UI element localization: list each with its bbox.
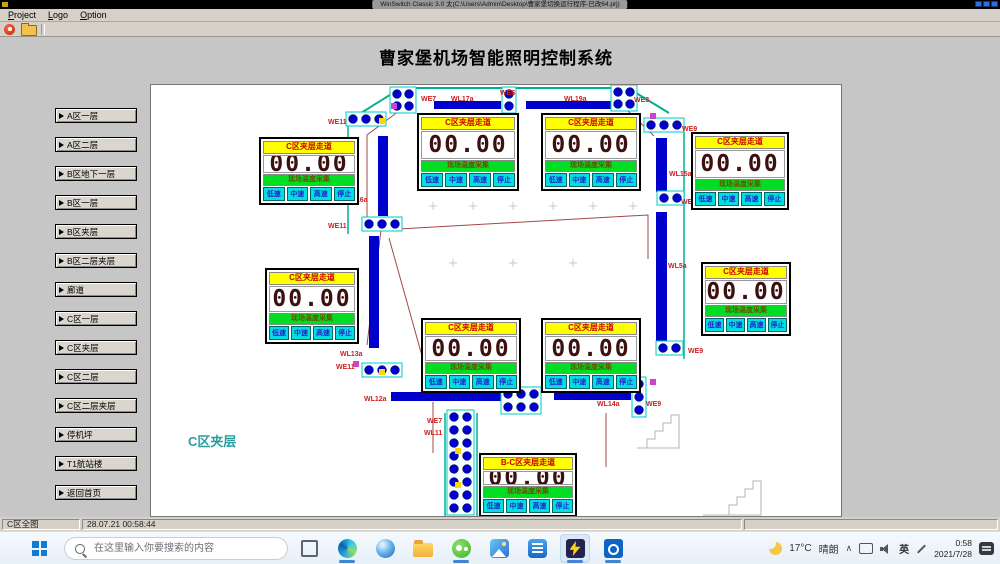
system-tray: 17°C 晴朗 ∧ 英 0:58 2021/7/28: [769, 532, 994, 564]
display-panel: C区夹层走道00.00现场温度采集低速中速高速停止: [417, 113, 519, 191]
temperature-display: 00.00: [545, 131, 637, 159]
sidebar-button-廊道[interactable]: 廊道: [55, 282, 137, 297]
chevron-up-icon[interactable]: ∧: [846, 543, 853, 554]
taskbar: 17°C 晴朗 ∧ 英 0:58 2021/7/28: [0, 531, 1000, 564]
edge-glyph: [338, 539, 357, 558]
photos-icon[interactable]: [484, 534, 514, 563]
speed-button-低速[interactable]: 低速: [263, 187, 285, 201]
arrow-icon: [59, 403, 64, 409]
display-panel: C区夹层走道00.00现场温度采集低速中速高速停止: [541, 113, 641, 191]
sidebar-button-C区二层[interactable]: C区二层: [55, 369, 137, 384]
arrow-icon: [59, 287, 64, 293]
sensor-label: 现场温度采集: [269, 313, 355, 325]
sensor-label: 现场温度采集: [695, 179, 785, 191]
menu-option[interactable]: Option: [74, 10, 113, 20]
panel-title: C区夹层走道: [695, 136, 785, 149]
sensor-label: 现场温度采集: [263, 174, 355, 186]
speed-button-中速[interactable]: 中速: [449, 375, 471, 389]
arrow-icon: [59, 345, 64, 351]
speed-button-停止[interactable]: 停止: [616, 375, 638, 389]
panel-title: C区夹层走道: [545, 117, 637, 130]
tim-glyph: [528, 539, 547, 558]
speed-buttons: 低速中速高速停止: [425, 375, 517, 389]
notification-icon[interactable]: [979, 542, 994, 555]
display-panel: B-C区夹层走道00.00现场温度采集低速中速高速停止: [479, 453, 577, 517]
search-icon: [75, 544, 85, 554]
speed-button-中速[interactable]: 中速: [291, 326, 311, 340]
sensor-label: 现场温度采集: [483, 486, 573, 498]
search-input[interactable]: [92, 542, 266, 555]
wechat-glyph: [452, 539, 471, 558]
sidebar-button-A区一层[interactable]: A区一层: [55, 108, 137, 123]
speed-button-高速[interactable]: 高速: [592, 173, 614, 187]
display-panel: C区夹层走道00.00现场温度采集低速中速高速停止: [541, 318, 641, 393]
status-page-name: C区全图: [2, 519, 80, 530]
sidebar-button-C区夹层[interactable]: C区夹层: [55, 340, 137, 355]
clock-date: 2021/7/28: [934, 549, 972, 560]
sensor-label: 现场温度采集: [421, 160, 515, 172]
arrow-icon: [59, 113, 64, 119]
speed-buttons: 低速中速高速停止: [269, 326, 355, 340]
speed-buttons: 低速中速高速停止: [545, 173, 637, 187]
sidebar-button-返回首页[interactable]: 返回首页: [55, 485, 137, 500]
browser-glyph: [376, 539, 395, 558]
speed-button-高速[interactable]: 高速: [472, 375, 494, 389]
sensor-label: 现场温度采集: [545, 362, 637, 374]
display-panel: C区夹层走道00.00现场温度采集低速中速高速停止: [259, 137, 359, 205]
sidebar-button-label: B区一层: [67, 197, 98, 209]
display-panel: C区夹层走道00.00现场温度采集低速中速高速停止: [421, 318, 521, 393]
area-label: C区夹层: [188, 431, 236, 450]
speed-button-停止[interactable]: 停止: [552, 499, 573, 513]
outlook-glyph: [604, 539, 623, 558]
status-timestamp: 28.07.21 00:58:44: [82, 519, 742, 530]
temperature-display: 00.00: [695, 150, 785, 178]
sidebar: A区一层A区二层B区地下一层B区一层B区夹层B区二层夹层廊道C区一层C区夹层C区…: [55, 108, 137, 514]
menu-bar: ProjectLogoOption: [0, 9, 1000, 22]
temperature-display: 00.00: [483, 471, 573, 485]
temperature-display: 00.00: [545, 336, 637, 361]
sensor-label: 现场温度采集: [705, 305, 787, 317]
speed-button-停止[interactable]: 停止: [768, 318, 787, 332]
panel-title: C区夹层走道: [421, 117, 515, 130]
outlook-icon[interactable]: [598, 534, 628, 563]
panel-title: C区夹层走道: [545, 322, 637, 335]
task-view-glyph: [301, 540, 318, 557]
app-icon: [2, 2, 8, 7]
panel-title: C区夹层走道: [425, 322, 517, 335]
speed-button-中速[interactable]: 中速: [506, 499, 527, 513]
arrow-icon: [59, 229, 64, 235]
arrow-icon: [59, 432, 64, 438]
speed-button-高速[interactable]: 高速: [529, 499, 550, 513]
speed-button-低速[interactable]: 低速: [705, 318, 724, 332]
maximize-icon[interactable]: [983, 1, 990, 7]
arrow-icon: [59, 490, 64, 496]
speed-button-停止[interactable]: 停止: [496, 375, 518, 389]
folder-glyph: [413, 543, 433, 557]
window-controls: [975, 1, 998, 7]
speed-buttons: 低速中速高速停止: [695, 192, 785, 206]
speed-button-停止[interactable]: 停止: [764, 192, 785, 206]
weather-cond[interactable]: 晴朗: [819, 541, 839, 556]
speed-button-中速[interactable]: 中速: [569, 375, 591, 389]
sidebar-button-label: T1航站楼: [67, 458, 102, 470]
taskbar-icons: [294, 533, 628, 564]
panel-layer: C区夹层走道00.00现场温度采集低速中速高速停止C区夹层走道00.00现场温度…: [151, 85, 842, 517]
sidebar-button-label: B区夹层: [67, 226, 98, 238]
winswitch-icon[interactable]: [560, 534, 590, 563]
sidebar-button-B区地下一层[interactable]: B区地下一层: [55, 166, 137, 181]
toolbar: [0, 22, 1000, 37]
edge-icon[interactable]: [332, 534, 362, 563]
browser-icon[interactable]: [370, 534, 400, 563]
speed-button-高速[interactable]: 高速: [313, 326, 333, 340]
speed-button-低速[interactable]: 低速: [269, 326, 289, 340]
temperature-display: 00.00: [421, 131, 515, 159]
sidebar-button-T1航站楼[interactable]: T1航站楼: [55, 456, 137, 471]
arrow-icon: [59, 374, 64, 380]
sidebar-button-label: B区二层夹层: [67, 255, 115, 267]
menu-project[interactable]: Project: [2, 10, 42, 20]
moon-icon[interactable]: [769, 542, 782, 555]
wechat-icon[interactable]: [446, 534, 476, 563]
sidebar-button-label: A区一层: [67, 110, 98, 122]
sidebar-button-label: C区二层夹层: [67, 400, 116, 412]
page-title: 曹家堡机场智能照明控制系统: [150, 44, 842, 69]
arrow-icon: [59, 461, 64, 467]
clock-time: 0:58: [934, 538, 972, 549]
speed-button-中速[interactable]: 中速: [445, 173, 467, 187]
folder-icon[interactable]: [408, 534, 438, 563]
sidebar-button-C区二层夹层[interactable]: C区二层夹层: [55, 398, 137, 413]
arrow-icon: [59, 171, 64, 177]
sidebar-button-停机坪[interactable]: 停机坪: [55, 427, 137, 442]
sidebar-button-label: A区二层: [67, 139, 98, 151]
status-spare-cell: [744, 519, 998, 530]
panel-title: C区夹层走道: [705, 266, 787, 279]
sidebar-button-label: C区一层: [67, 313, 99, 325]
open-project-icon[interactable]: [21, 25, 37, 36]
speed-buttons: 低速中速高速停止: [483, 499, 573, 513]
screen: WinSwitch Classic 3.0 太(C:\Users\Admin\D…: [0, 0, 1000, 564]
sidebar-button-label: 停机坪: [67, 429, 93, 441]
speed-button-低速[interactable]: 低速: [483, 499, 504, 513]
temperature-display: 00.00: [425, 336, 517, 361]
display-panel: C区夹层走道00.00现场温度采集低速中速高速停止: [265, 268, 359, 344]
winswitch-glyph: [566, 539, 585, 558]
arrow-icon: [59, 316, 64, 322]
tim-icon[interactable]: [522, 534, 552, 563]
stop-icon[interactable]: [4, 24, 15, 35]
speed-button-中速[interactable]: 中速: [726, 318, 745, 332]
sidebar-button-B区夹层[interactable]: B区夹层: [55, 224, 137, 239]
sidebar-button-A区二层[interactable]: A区二层: [55, 137, 137, 152]
taskbar-search[interactable]: [64, 537, 288, 560]
sidebar-button-label: B区地下一层: [67, 168, 115, 180]
speed-button-停止[interactable]: 停止: [334, 187, 356, 201]
arrow-icon: [59, 142, 64, 148]
sidebar-button-label: 返回首页: [67, 487, 101, 499]
display-panel: C区夹层走道00.00现场温度采集低速中速高速停止: [701, 262, 791, 336]
status-bar: C区全图 28.07.21 00:58:44: [0, 517, 1000, 531]
speed-button-中速[interactable]: 中速: [718, 192, 739, 206]
pen-icon[interactable]: [917, 544, 926, 553]
speed-button-停止[interactable]: 停止: [616, 173, 638, 187]
plan-canvas: WE7WL17aWE6WL19aWE3WE11WE9WL16aWL15aWE11…: [150, 84, 842, 517]
arrow-icon: [59, 258, 64, 264]
temperature-display: 00.00: [705, 280, 787, 304]
speed-button-中速[interactable]: 中速: [569, 173, 591, 187]
trackpad-icon[interactable]: [859, 543, 873, 554]
speed-buttons: 低速中速高速停止: [705, 318, 787, 332]
speed-button-低速[interactable]: 低速: [425, 375, 447, 389]
speed-buttons: 低速中速高速停止: [545, 375, 637, 389]
sidebar-button-label: C区夹层: [67, 342, 99, 354]
speed-button-高速[interactable]: 高速: [310, 187, 332, 201]
speed-button-停止[interactable]: 停止: [493, 173, 515, 187]
speed-buttons: 低速中速高速停止: [263, 187, 355, 201]
display-panel: C区夹层走道00.00现场温度采集低速中速高速停止: [691, 132, 789, 210]
close-icon[interactable]: [991, 1, 998, 7]
panel-title: B-C区夹层走道: [483, 457, 573, 470]
window-titlebar: WinSwitch Classic 3.0 太(C:\Users\Admin\D…: [0, 0, 1000, 9]
panel-title: C区夹层走道: [269, 272, 355, 285]
speed-button-低速[interactable]: 低速: [695, 192, 716, 206]
sidebar-button-B区一层[interactable]: B区一层: [55, 195, 137, 210]
panel-title: C区夹层走道: [263, 141, 355, 154]
arrow-icon: [59, 200, 64, 206]
speed-button-高速[interactable]: 高速: [592, 375, 614, 389]
sidebar-button-label: C区二层: [67, 371, 99, 383]
sidebar-button-label: 廊道: [67, 284, 84, 296]
taskbar-clock[interactable]: 0:58 2021/7/28: [934, 538, 972, 559]
photos-glyph: [490, 539, 509, 558]
input-language-indicator[interactable]: 英: [899, 541, 909, 556]
speed-button-低速[interactable]: 低速: [421, 173, 443, 187]
volume-icon[interactable]: [880, 544, 892, 554]
sensor-label: 现场温度采集: [545, 160, 637, 172]
speed-button-高速[interactable]: 高速: [469, 173, 491, 187]
task-view-icon[interactable]: [294, 534, 324, 563]
sidebar-button-C区一层[interactable]: C区一层: [55, 311, 137, 326]
minimize-icon[interactable]: [975, 1, 982, 7]
temperature-display: 00.00: [269, 286, 355, 312]
start-button-icon[interactable]: [32, 541, 47, 556]
toolbar-divider: [41, 24, 45, 35]
window-title: WinSwitch Classic 3.0 太(C:\Users\Admin\D…: [372, 0, 627, 9]
sidebar-button-B区二层夹层[interactable]: B区二层夹层: [55, 253, 137, 268]
speed-button-中速[interactable]: 中速: [287, 187, 309, 201]
speed-button-高速[interactable]: 高速: [741, 192, 762, 206]
speed-buttons: 低速中速高速停止: [421, 173, 515, 187]
temperature-display: 00.00: [263, 155, 355, 173]
sensor-label: 现场温度采集: [425, 362, 517, 374]
speed-button-低速[interactable]: 低速: [545, 375, 567, 389]
speed-button-停止[interactable]: 停止: [335, 326, 355, 340]
speed-button-低速[interactable]: 低速: [545, 173, 567, 187]
menu-logo[interactable]: Logo: [42, 10, 74, 20]
weather-temp[interactable]: 17°C: [789, 543, 811, 554]
speed-button-高速[interactable]: 高速: [747, 318, 766, 332]
